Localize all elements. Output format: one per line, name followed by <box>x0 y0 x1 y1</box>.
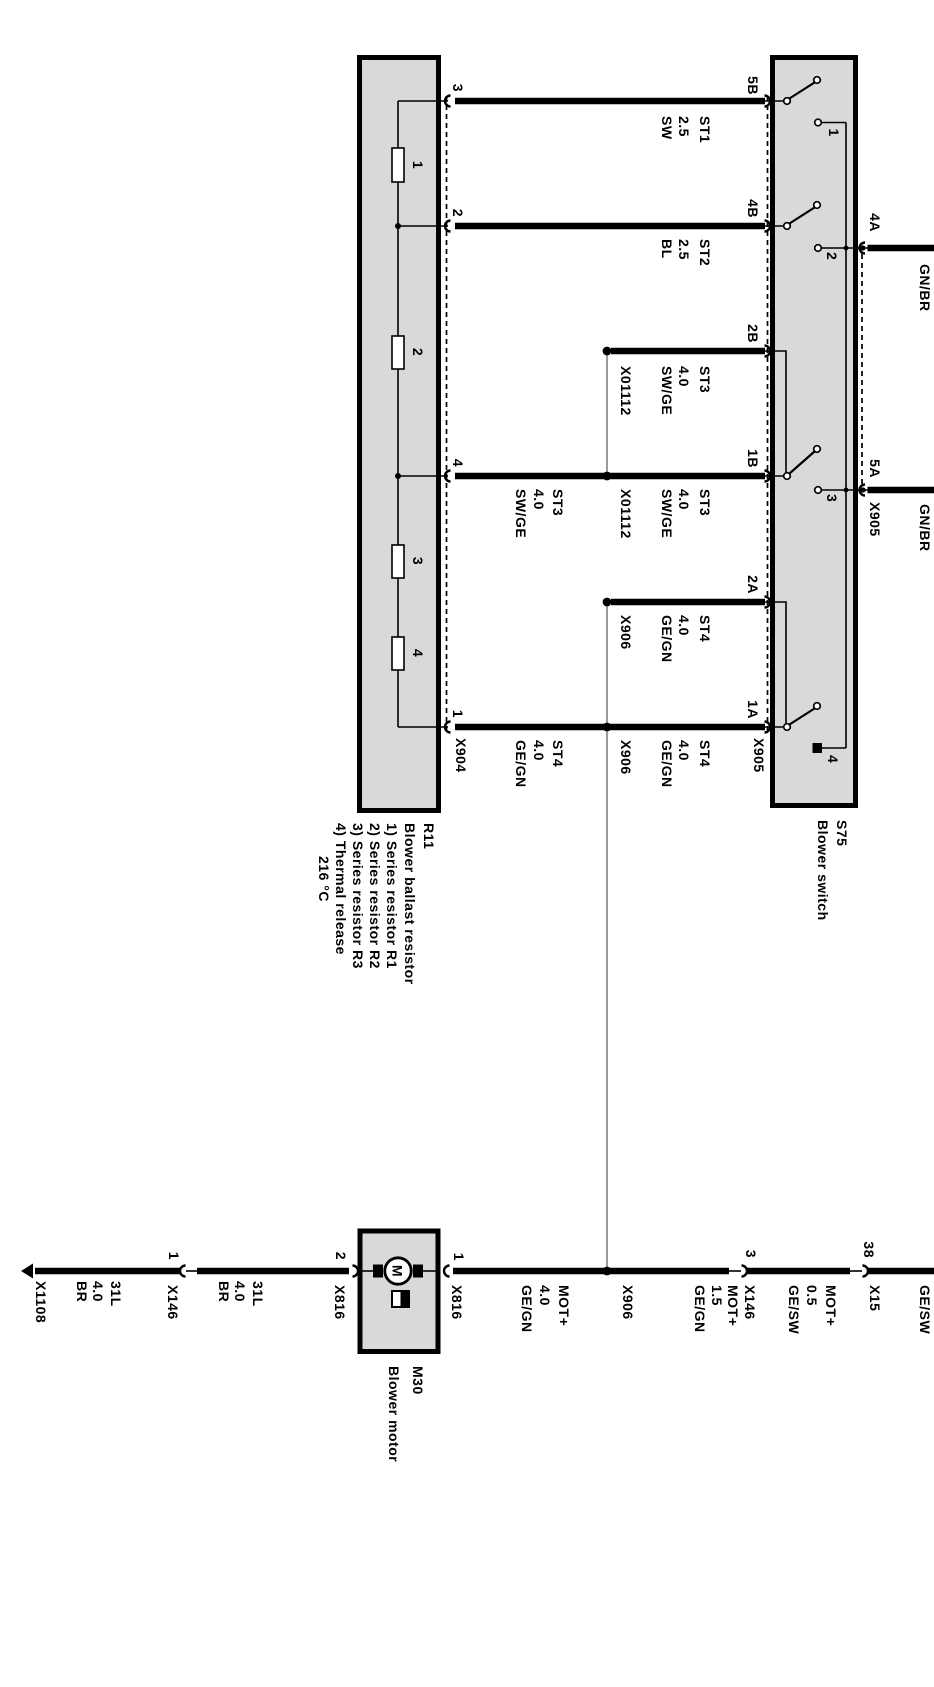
svg-text:ST4: ST4 <box>697 615 713 642</box>
svg-text:2: 2 <box>410 348 426 356</box>
svg-text:ST4: ST4 <box>550 740 566 767</box>
svg-text:1: 1 <box>451 1253 467 1261</box>
svg-text:GE/GN: GE/GN <box>659 615 675 663</box>
svg-text:2B: 2B <box>745 324 761 343</box>
svg-text:31L: 31L <box>250 1281 266 1307</box>
svg-text:3: 3 <box>743 1250 759 1258</box>
svg-text:M30: M30 <box>410 1366 426 1395</box>
svg-text:MOT+: MOT+ <box>556 1285 572 1326</box>
svg-text:Blower switch: Blower switch <box>815 820 831 921</box>
svg-text:GN/BR: GN/BR <box>917 504 933 552</box>
svg-text:2A: 2A <box>745 575 761 594</box>
svg-text:X904: X904 <box>453 738 469 773</box>
svg-text:ST3: ST3 <box>697 489 713 516</box>
svg-text:Blower ballast resistor: Blower ballast resistor <box>402 823 418 985</box>
svg-text:4: 4 <box>410 649 426 657</box>
svg-text:3) Series resistor R3: 3) Series resistor R3 <box>350 823 366 969</box>
svg-text:2: 2 <box>824 252 840 260</box>
svg-text:GE/GN: GE/GN <box>659 740 675 788</box>
svg-text:ST4: ST4 <box>697 740 713 767</box>
svg-text:GE/GN: GE/GN <box>692 1285 708 1333</box>
svg-text:4.0: 4.0 <box>676 740 692 761</box>
svg-text:X816: X816 <box>332 1285 348 1320</box>
svg-text:4A: 4A <box>867 213 883 232</box>
svg-text:SW: SW <box>659 116 675 140</box>
svg-text:GE/GN: GE/GN <box>519 1285 535 1333</box>
svg-text:GE/GN: GE/GN <box>513 740 529 788</box>
svg-text:1A: 1A <box>745 700 761 719</box>
svg-text:216 °C: 216 °C <box>316 856 332 902</box>
svg-text:Blower motor: Blower motor <box>386 1366 402 1462</box>
svg-text:X01112: X01112 <box>618 489 634 539</box>
svg-text:BL: BL <box>659 239 675 259</box>
svg-text:1B: 1B <box>745 449 761 468</box>
svg-text:X906: X906 <box>618 615 634 650</box>
svg-text:4.0: 4.0 <box>676 489 692 510</box>
svg-text:X146: X146 <box>165 1285 181 1320</box>
svg-text:GE/SW: GE/SW <box>917 1285 933 1334</box>
svg-text:4.0: 4.0 <box>676 615 692 636</box>
svg-text:2.5: 2.5 <box>676 239 692 260</box>
svg-text:GN/BR: GN/BR <box>917 264 933 312</box>
svg-text:1: 1 <box>826 129 842 137</box>
svg-text:MOT+: MOT+ <box>725 1285 741 1326</box>
svg-text:4.0: 4.0 <box>90 1281 106 1302</box>
svg-text:X906: X906 <box>620 1285 636 1320</box>
svg-text:4.0: 4.0 <box>676 366 692 387</box>
svg-text:S75: S75 <box>834 820 850 846</box>
svg-text:3: 3 <box>824 494 840 502</box>
svg-text:ST1: ST1 <box>697 116 713 143</box>
svg-text:1.5: 1.5 <box>709 1285 725 1306</box>
svg-text:4.0: 4.0 <box>531 740 547 761</box>
svg-text:4) Thermal release: 4) Thermal release <box>333 823 349 955</box>
svg-text:2: 2 <box>450 209 466 217</box>
svg-text:X905: X905 <box>867 502 883 537</box>
svg-text:38: 38 <box>861 1241 877 1258</box>
svg-text:ST3: ST3 <box>697 366 713 393</box>
svg-text:1) Series resistor R1: 1) Series resistor R1 <box>384 823 400 969</box>
svg-text:31L: 31L <box>108 1281 124 1307</box>
svg-text:ST3: ST3 <box>550 489 566 516</box>
svg-text:4: 4 <box>450 459 466 467</box>
svg-text:R11: R11 <box>421 823 437 849</box>
svg-text:X905: X905 <box>751 738 767 773</box>
svg-text:1: 1 <box>166 1252 182 1260</box>
svg-text:2.5: 2.5 <box>676 116 692 137</box>
svg-text:4.0: 4.0 <box>232 1281 248 1302</box>
svg-text:3: 3 <box>450 84 466 92</box>
svg-text:X01112: X01112 <box>618 366 634 416</box>
svg-text:SW/GE: SW/GE <box>659 489 675 538</box>
svg-text:X906: X906 <box>618 740 634 775</box>
svg-text:ST2: ST2 <box>697 239 713 266</box>
svg-text:0.5: 0.5 <box>804 1285 820 1306</box>
svg-text:X146: X146 <box>742 1285 758 1320</box>
svg-text:4B: 4B <box>745 199 761 218</box>
svg-text:X1108: X1108 <box>33 1281 49 1323</box>
svg-text:GE/SW: GE/SW <box>786 1285 802 1334</box>
svg-text:4.0: 4.0 <box>531 489 547 510</box>
svg-text:5A: 5A <box>867 459 883 478</box>
svg-text:2: 2 <box>333 1252 349 1260</box>
svg-text:M: M <box>390 1265 406 1277</box>
svg-text:4: 4 <box>825 755 841 763</box>
svg-text:SW/GE: SW/GE <box>513 489 529 538</box>
svg-text:5B: 5B <box>745 76 761 95</box>
svg-text:3: 3 <box>410 557 426 565</box>
svg-text:1: 1 <box>450 710 466 718</box>
svg-text:BR: BR <box>74 1281 90 1302</box>
svg-text:MOT+: MOT+ <box>823 1285 839 1326</box>
svg-text:X15: X15 <box>867 1285 883 1311</box>
svg-text:2) Series resistor R2: 2) Series resistor R2 <box>367 823 383 969</box>
svg-text:4.0: 4.0 <box>537 1285 553 1306</box>
svg-text:X816: X816 <box>449 1285 465 1320</box>
svg-text:BR: BR <box>216 1281 232 1302</box>
svg-text:1: 1 <box>410 161 426 169</box>
svg-text:SW/GE: SW/GE <box>659 366 675 415</box>
